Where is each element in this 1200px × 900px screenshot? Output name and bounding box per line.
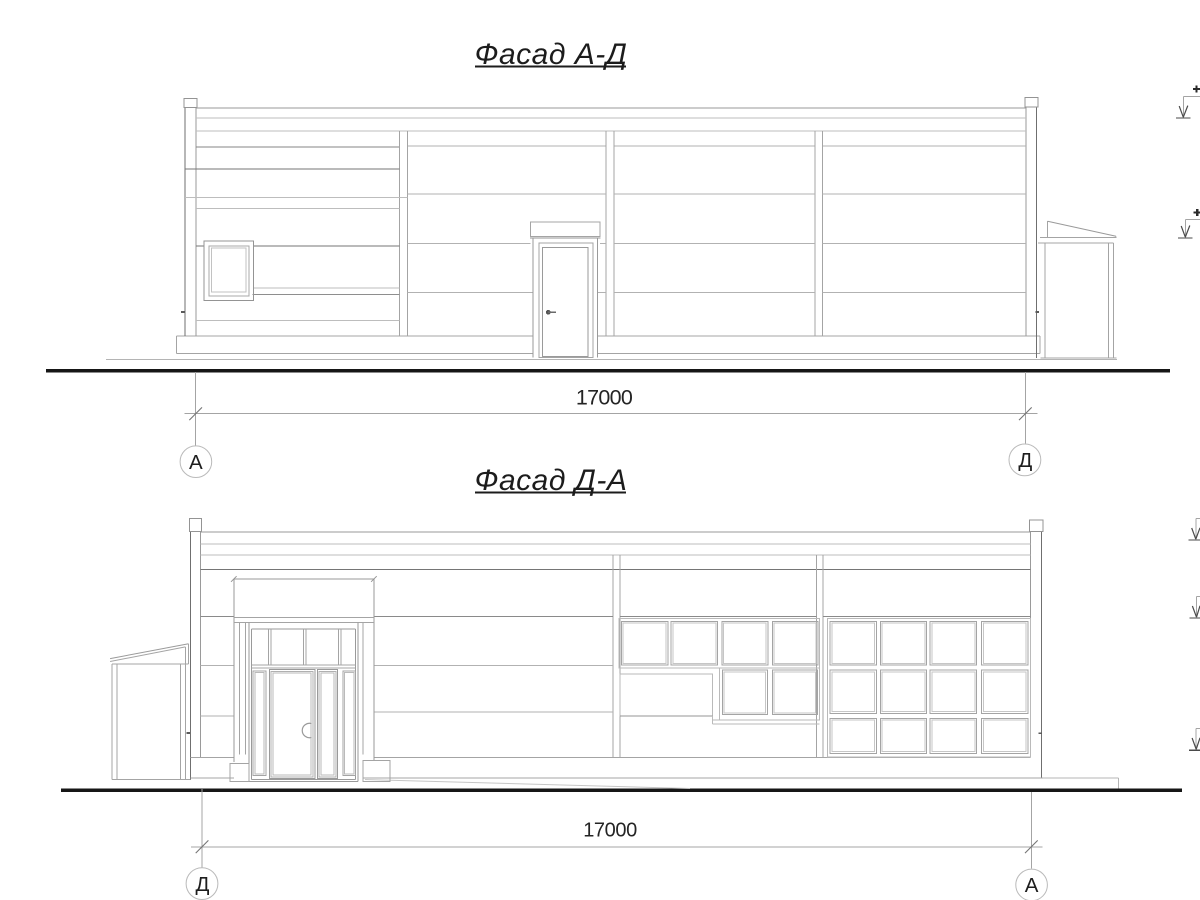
svg-text:Д: Д [195,873,209,896]
svg-text:17000: 17000 [576,386,633,410]
svg-text:А: А [189,451,203,474]
svg-text:Д: Д [1018,449,1032,472]
svg-text:А: А [1025,874,1039,897]
svg-text:17000: 17000 [583,820,637,842]
